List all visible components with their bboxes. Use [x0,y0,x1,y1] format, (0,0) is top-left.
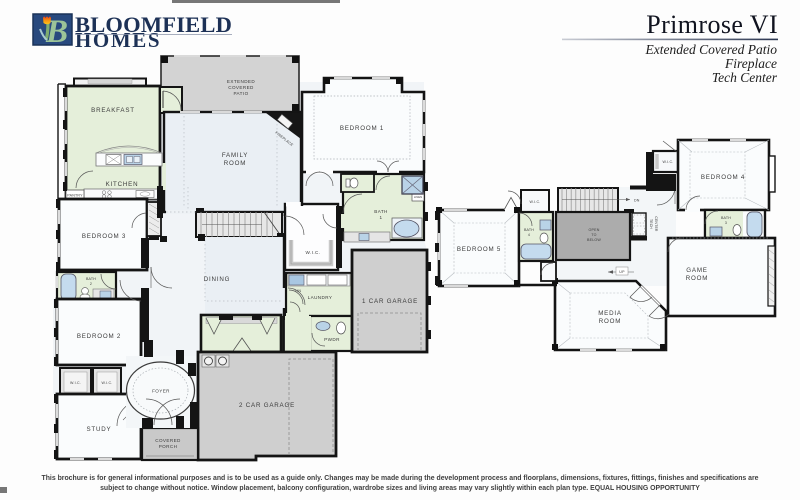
svg-text:BEDROOM 4: BEDROOM 4 [701,174,745,181]
svg-text:Extended Covered Patio: Extended Covered Patio [645,42,778,57]
svg-text:W.I.C.: W.I.C. [70,381,81,385]
svg-text:Tech Center: Tech Center [712,70,778,85]
svg-text:HOMES: HOMES [75,28,161,52]
svg-text:This brochure is for general i: This brochure is for general information… [41,475,758,482]
svg-text:COVERED: COVERED [228,85,254,90]
svg-text:CENTER: CENTER [654,216,658,231]
svg-text:1: 1 [380,215,383,220]
svg-text:3: 3 [725,221,727,225]
svg-text:PATIO: PATIO [233,91,248,96]
svg-text:BEDROOM 5: BEDROOM 5 [457,246,501,253]
svg-text:ROOM: ROOM [686,275,708,282]
svg-text:2 CAR GARAGE: 2 CAR GARAGE [239,402,295,409]
svg-text:2: 2 [90,282,92,286]
svg-text:BEDROOM 3: BEDROOM 3 [82,233,126,240]
svg-text:UP: UP [619,270,625,274]
svg-text:4: 4 [528,233,530,237]
svg-text:STUDY: STUDY [87,426,112,433]
svg-text:MEDIA: MEDIA [598,310,622,317]
svg-text:BATH: BATH [374,209,388,214]
svg-text:LAUNDRY: LAUNDRY [308,295,333,300]
svg-text:1 CAR GARAGE: 1 CAR GARAGE [362,298,418,305]
svg-text:W.I.C.: W.I.C. [306,250,321,255]
svg-text:TO: TO [591,233,596,237]
svg-text:DN: DN [634,199,640,203]
svg-text:PANTRY: PANTRY [67,194,83,198]
svg-text:KITCHEN: KITCHEN [106,181,139,188]
svg-text:Primrose VI: Primrose VI [646,10,778,39]
svg-text:DINING: DINING [204,276,230,283]
svg-text:BEDROOM 2: BEDROOM 2 [77,333,121,340]
svg-text:W.I.C.: W.I.C. [102,381,113,385]
svg-text:BATH: BATH [721,216,731,220]
svg-text:COVERED: COVERED [155,438,181,443]
svg-text:BELOW: BELOW [587,238,601,242]
svg-text:W.I.C.: W.I.C. [530,200,541,204]
svg-text:PWDR: PWDR [324,337,340,342]
svg-text:TECH: TECH [649,219,653,229]
svg-text:OPEN: OPEN [589,228,600,232]
svg-text:BATH: BATH [86,277,96,281]
svg-text:BATH: BATH [524,228,534,232]
svg-text:BREAKFAST: BREAKFAST [91,107,135,114]
svg-text:PORCH: PORCH [159,444,178,449]
svg-text:GAME: GAME [686,267,707,274]
svg-text:ROOM: ROOM [599,318,621,325]
svg-text:W.I.C.: W.I.C. [663,160,674,164]
svg-text:EXTENDED: EXTENDED [227,79,255,84]
svg-text:subject to change without noti: subject to change without notice. Window… [100,485,700,492]
svg-text:FAMILY: FAMILY [222,152,248,159]
svg-text:FOYER: FOYER [152,389,170,394]
svg-text:ROOM: ROOM [224,160,246,167]
svg-text:LINEN: LINEN [414,195,422,199]
svg-text:Fireplace: Fireplace [724,56,777,71]
svg-text:BEDROOM 1: BEDROOM 1 [340,125,384,132]
